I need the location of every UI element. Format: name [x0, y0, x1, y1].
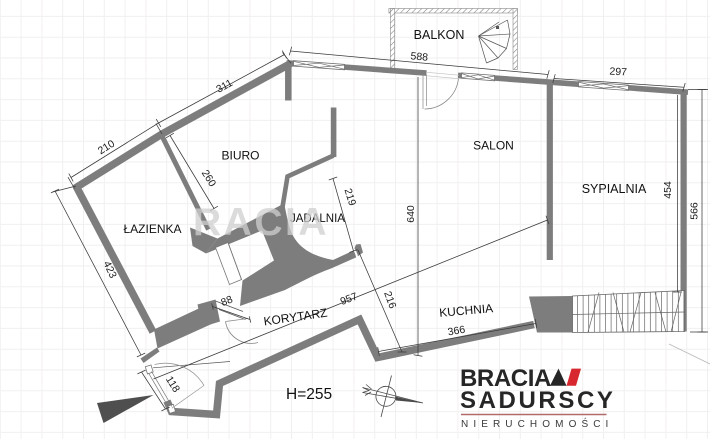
svg-text:BALKON: BALKON: [414, 28, 465, 42]
svg-text:ŁAZIENKA: ŁAZIENKA: [123, 222, 181, 236]
svg-text:BIURO: BIURO: [221, 149, 259, 163]
svg-text:NIERUCHOMOŚCI: NIERUCHOMOŚCI: [461, 417, 613, 430]
svg-text:SADURSCY: SADURSCY: [460, 387, 615, 414]
svg-text:SYPIALNIA: SYPIALNIA: [582, 182, 647, 196]
svg-text:588: 588: [410, 50, 429, 63]
svg-text:297: 297: [609, 65, 627, 78]
svg-text:SALON: SALON: [473, 139, 514, 153]
svg-text:H=255: H=255: [286, 386, 332, 403]
svg-text:566: 566: [689, 202, 701, 220]
svg-text:640: 640: [405, 205, 417, 223]
svg-text:RACIA: RACIA: [193, 201, 329, 244]
svg-text:454: 454: [662, 181, 674, 199]
